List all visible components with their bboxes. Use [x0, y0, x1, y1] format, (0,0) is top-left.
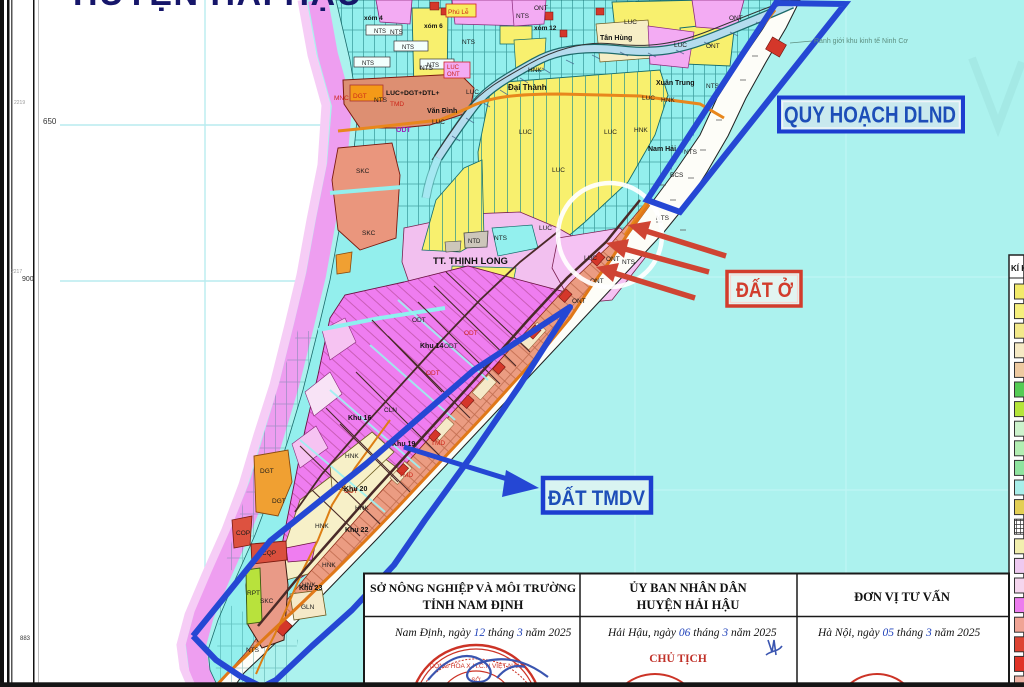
svg-text:MNC: MNC	[334, 95, 349, 102]
svg-text:650: 650	[43, 117, 57, 126]
svg-text:NTS: NTS	[362, 61, 374, 67]
svg-text:ODT: ODT	[464, 330, 478, 337]
svg-text:Khu 14: Khu 14	[420, 343, 443, 350]
svg-text:LUC: LUC	[674, 42, 687, 49]
svg-text:Văn Đình: Văn Đình	[427, 108, 457, 115]
svg-text:NTS: NTS	[402, 45, 414, 51]
svg-text:ĐẤT TMDV: ĐẤT TMDV	[548, 485, 646, 510]
svg-text:Tân Hùng: Tân Hùng	[600, 35, 632, 42]
svg-text:NTS: NTS	[390, 29, 404, 36]
svg-text:HNK: HNK	[355, 505, 369, 512]
svg-text:Nam Hải: Nam Hải	[648, 146, 676, 153]
svg-text:CLN: CLN	[384, 407, 397, 414]
svg-text:Khu 16: Khu 16	[348, 415, 371, 422]
svg-text:ỦY BAN NHÂN DÂN: ỦY BAN NHÂN DÂN	[629, 581, 746, 595]
svg-text:xóm 12: xóm 12	[534, 25, 557, 32]
svg-text:Ranh giới khu kinh tế Ninh Cơ: Ranh giới khu kinh tế Ninh Cơ	[814, 36, 908, 45]
svg-text:NTS: NTS	[374, 97, 388, 104]
svg-text:LUC: LUC	[624, 19, 637, 26]
svg-text:HUYỆN HẢI HẬU: HUYỆN HẢI HẬU	[637, 598, 740, 612]
svg-text:TMD: TMD	[431, 440, 445, 447]
svg-text:HNK: HNK	[661, 97, 675, 104]
svg-text:LUC: LUC	[584, 255, 597, 262]
svg-text:NTS: NTS	[622, 259, 636, 266]
svg-text:ONT: ONT	[447, 72, 460, 78]
svg-text:NTS: NTS	[462, 39, 476, 46]
svg-text:KÍ HIỆU: KÍ HIỆU	[1011, 264, 1024, 273]
svg-text:Xuân Trung: Xuân Trung	[656, 80, 695, 87]
svg-text:NTS: NTS	[516, 13, 530, 20]
svg-text:ĐẤT Ở: ĐẤT Ở	[736, 278, 793, 302]
svg-text:Phú Lễ: Phú Lễ	[448, 7, 469, 16]
svg-text:ONT: ONT	[606, 256, 620, 263]
svg-text:LUC: LUC	[552, 167, 565, 174]
svg-text:DGT: DGT	[260, 468, 274, 475]
svg-text:SKC: SKC	[260, 598, 274, 605]
svg-text:TMD: TMD	[390, 101, 404, 108]
svg-text:LUC+DGT+DTL+: LUC+DGT+DTL+	[386, 90, 439, 97]
svg-text:xóm 6: xóm 6	[424, 23, 443, 30]
svg-text:TMD: TMD	[399, 472, 413, 479]
svg-text:SỞ NÔNG NGHIỆP VÀ MÔI TRƯỜNG: SỞ NÔNG NGHIỆP VÀ MÔI TRƯỜNG	[370, 581, 576, 595]
svg-text:HNK: HNK	[345, 453, 359, 460]
svg-text:CHỦ TỊCH: CHỦ TỊCH	[649, 651, 707, 665]
svg-text:LUC: LUC	[604, 129, 617, 136]
svg-text:NTS: NTS	[246, 647, 260, 654]
svg-text:LUC: LUC	[432, 119, 445, 126]
svg-text:ODT: ODT	[426, 370, 440, 377]
svg-text:ONT: ONT	[534, 5, 548, 12]
svg-text:HNK: HNK	[634, 127, 648, 134]
svg-text:LUC: LUC	[539, 225, 552, 232]
svg-text:ODT: ODT	[444, 343, 458, 350]
svg-text:Khu 23: Khu 23	[299, 585, 322, 592]
svg-text:ODT: ODT	[412, 317, 426, 324]
svg-text:Hải Hậu, ngày 06 tháng 3 năm 2: Hải Hậu, ngày 06 tháng 3 năm 2025	[607, 627, 777, 639]
svg-text:GLN: GLN	[301, 604, 315, 611]
svg-text:HNK: HNK	[322, 562, 336, 569]
svg-text:BCS: BCS	[670, 172, 684, 179]
svg-text:NTD: NTD	[468, 239, 481, 245]
svg-text:2217: 2217	[11, 269, 22, 275]
svg-text:HNK: HNK	[315, 523, 329, 530]
svg-text:Đại Thành: Đại Thành	[508, 83, 547, 92]
svg-text:HUYỆN HẢI HẬU: HUYỆN HẢI HẬU	[73, 0, 363, 13]
svg-text:ONT: ONT	[706, 43, 720, 50]
svg-text:RPT: RPT	[247, 590, 260, 597]
svg-text:NTS: NTS	[494, 235, 508, 242]
svg-text:2219: 2219	[14, 100, 25, 106]
svg-text:COP: COP	[236, 530, 250, 537]
svg-text:Nam Định, ngày 12 tháng 3 năm: Nam Định, ngày 12 tháng 3 năm 2025	[394, 627, 572, 639]
svg-text:NTS: NTS	[374, 29, 386, 35]
svg-text:SKC: SKC	[362, 230, 376, 237]
svg-text:DGT: DGT	[353, 93, 367, 100]
svg-text:DGT: DGT	[272, 498, 286, 505]
svg-text:Hà Nội, ngày 05 tháng 3 năm 20: Hà Nội, ngày 05 tháng 3 năm 2025	[817, 627, 981, 639]
svg-text:LUC: LUC	[642, 95, 655, 102]
svg-text:LUC: LUC	[466, 89, 479, 96]
svg-text:TỈNH NAM ĐỊNH: TỈNH NAM ĐỊNH	[423, 598, 524, 612]
svg-text:883: 883	[20, 636, 31, 642]
svg-text:ONT: ONT	[572, 298, 586, 305]
svg-text:SKC: SKC	[356, 168, 370, 175]
svg-text:Khu 20: Khu 20	[344, 486, 367, 493]
svg-text:xóm 4: xóm 4	[364, 15, 383, 22]
svg-text:ODT: ODT	[396, 127, 412, 134]
svg-text:TT. THỊNH LONG: TT. THỊNH LONG	[433, 256, 508, 267]
svg-text:HNK: HNK	[528, 67, 542, 74]
svg-text:NTS: NTS	[420, 65, 434, 72]
svg-text:NTS: NTS	[684, 149, 698, 156]
svg-text:LUC: LUC	[447, 65, 460, 71]
svg-text:QUY HOẠCH DLND: QUY HOẠCH DLND	[784, 102, 956, 128]
svg-text:ONT: ONT	[729, 15, 743, 22]
svg-text:Khu 22: Khu 22	[345, 527, 368, 534]
svg-text:LUC: LUC	[519, 129, 532, 136]
svg-text:900: 900	[22, 276, 34, 283]
svg-text:ĐƠN VỊ TƯ VẤN: ĐƠN VỊ TƯ VẤN	[854, 589, 950, 604]
